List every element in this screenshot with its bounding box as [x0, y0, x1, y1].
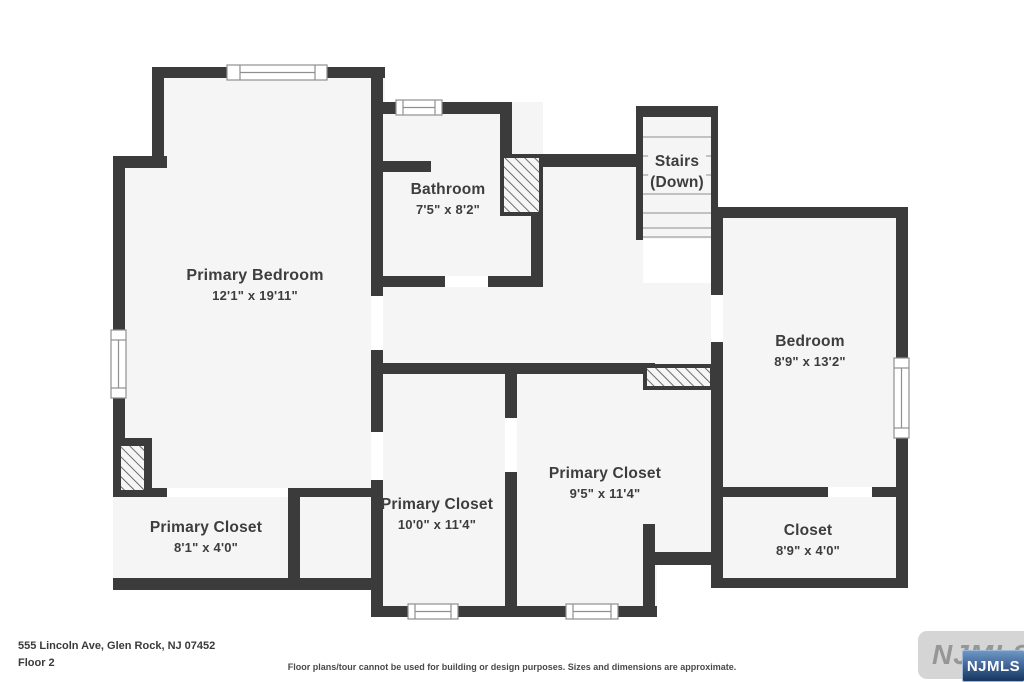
room-label-bathroom: Bathroom 7'5" x 8'2" [411, 180, 486, 219]
window-icon [396, 100, 442, 115]
room-dimensions: 9'5" x 11'4" [570, 484, 641, 503]
room-name: Primary Closet [549, 464, 661, 484]
window-icon [566, 604, 618, 619]
njmls-badge-logo: NJMLS [962, 650, 1024, 682]
address-text: 555 Lincoln Ave, Glen Rock, NJ 07452 [18, 640, 215, 652]
room-dimensions: 7'5" x 8'2" [416, 200, 480, 219]
window-icon [111, 330, 126, 398]
floor-plan-drawing [0, 0, 1024, 682]
room-label-primary-closet-a: Primary Closet 8'1" x 4'0" [150, 518, 262, 557]
room-name: Bathroom [411, 180, 486, 200]
room-label-primary-closet-b: Primary Closet 10'0" x 11'4" [381, 495, 493, 534]
room-name: Closet [784, 521, 833, 541]
room-dimensions: 8'9" x 4'0" [776, 541, 840, 560]
room-dimensions: 8'1" x 4'0" [174, 538, 238, 557]
room-dimensions: 10'0" x 11'4" [398, 515, 476, 534]
disclaimer-text: Floor plans/tour cannot be used for buil… [0, 662, 1024, 672]
room-name: Primary Bedroom [186, 266, 323, 286]
room-dimensions: 8'9" x 13'2" [774, 352, 846, 371]
room-label-closet: Closet 8'9" x 4'0" [776, 521, 840, 560]
window-icon [408, 604, 458, 619]
stairs-label-line1: Stairs [655, 151, 699, 172]
window-icon [227, 65, 327, 80]
room-label-bedroom: Bedroom 8'9" x 13'2" [774, 332, 846, 371]
floor-plan-page: Primary Bedroom 12'1" x 19'11" Bathroom … [0, 0, 1024, 682]
room-label-primary-bedroom: Primary Bedroom 12'1" x 19'11" [186, 266, 323, 305]
room-name: Primary Closet [150, 518, 262, 538]
stairs-label-line2: (Down) [650, 172, 704, 193]
window-icon [894, 358, 909, 438]
njmls-badge-text: NJMLS [967, 658, 1020, 675]
room-label-primary-closet-c: Primary Closet 9'5" x 11'4" [549, 464, 661, 503]
room-name: Bedroom [775, 332, 844, 352]
room-name: Primary Closet [381, 495, 493, 515]
room-dimensions: 12'1" x 19'11" [212, 286, 298, 305]
room-label-stairs: Stairs (Down) [648, 151, 706, 193]
